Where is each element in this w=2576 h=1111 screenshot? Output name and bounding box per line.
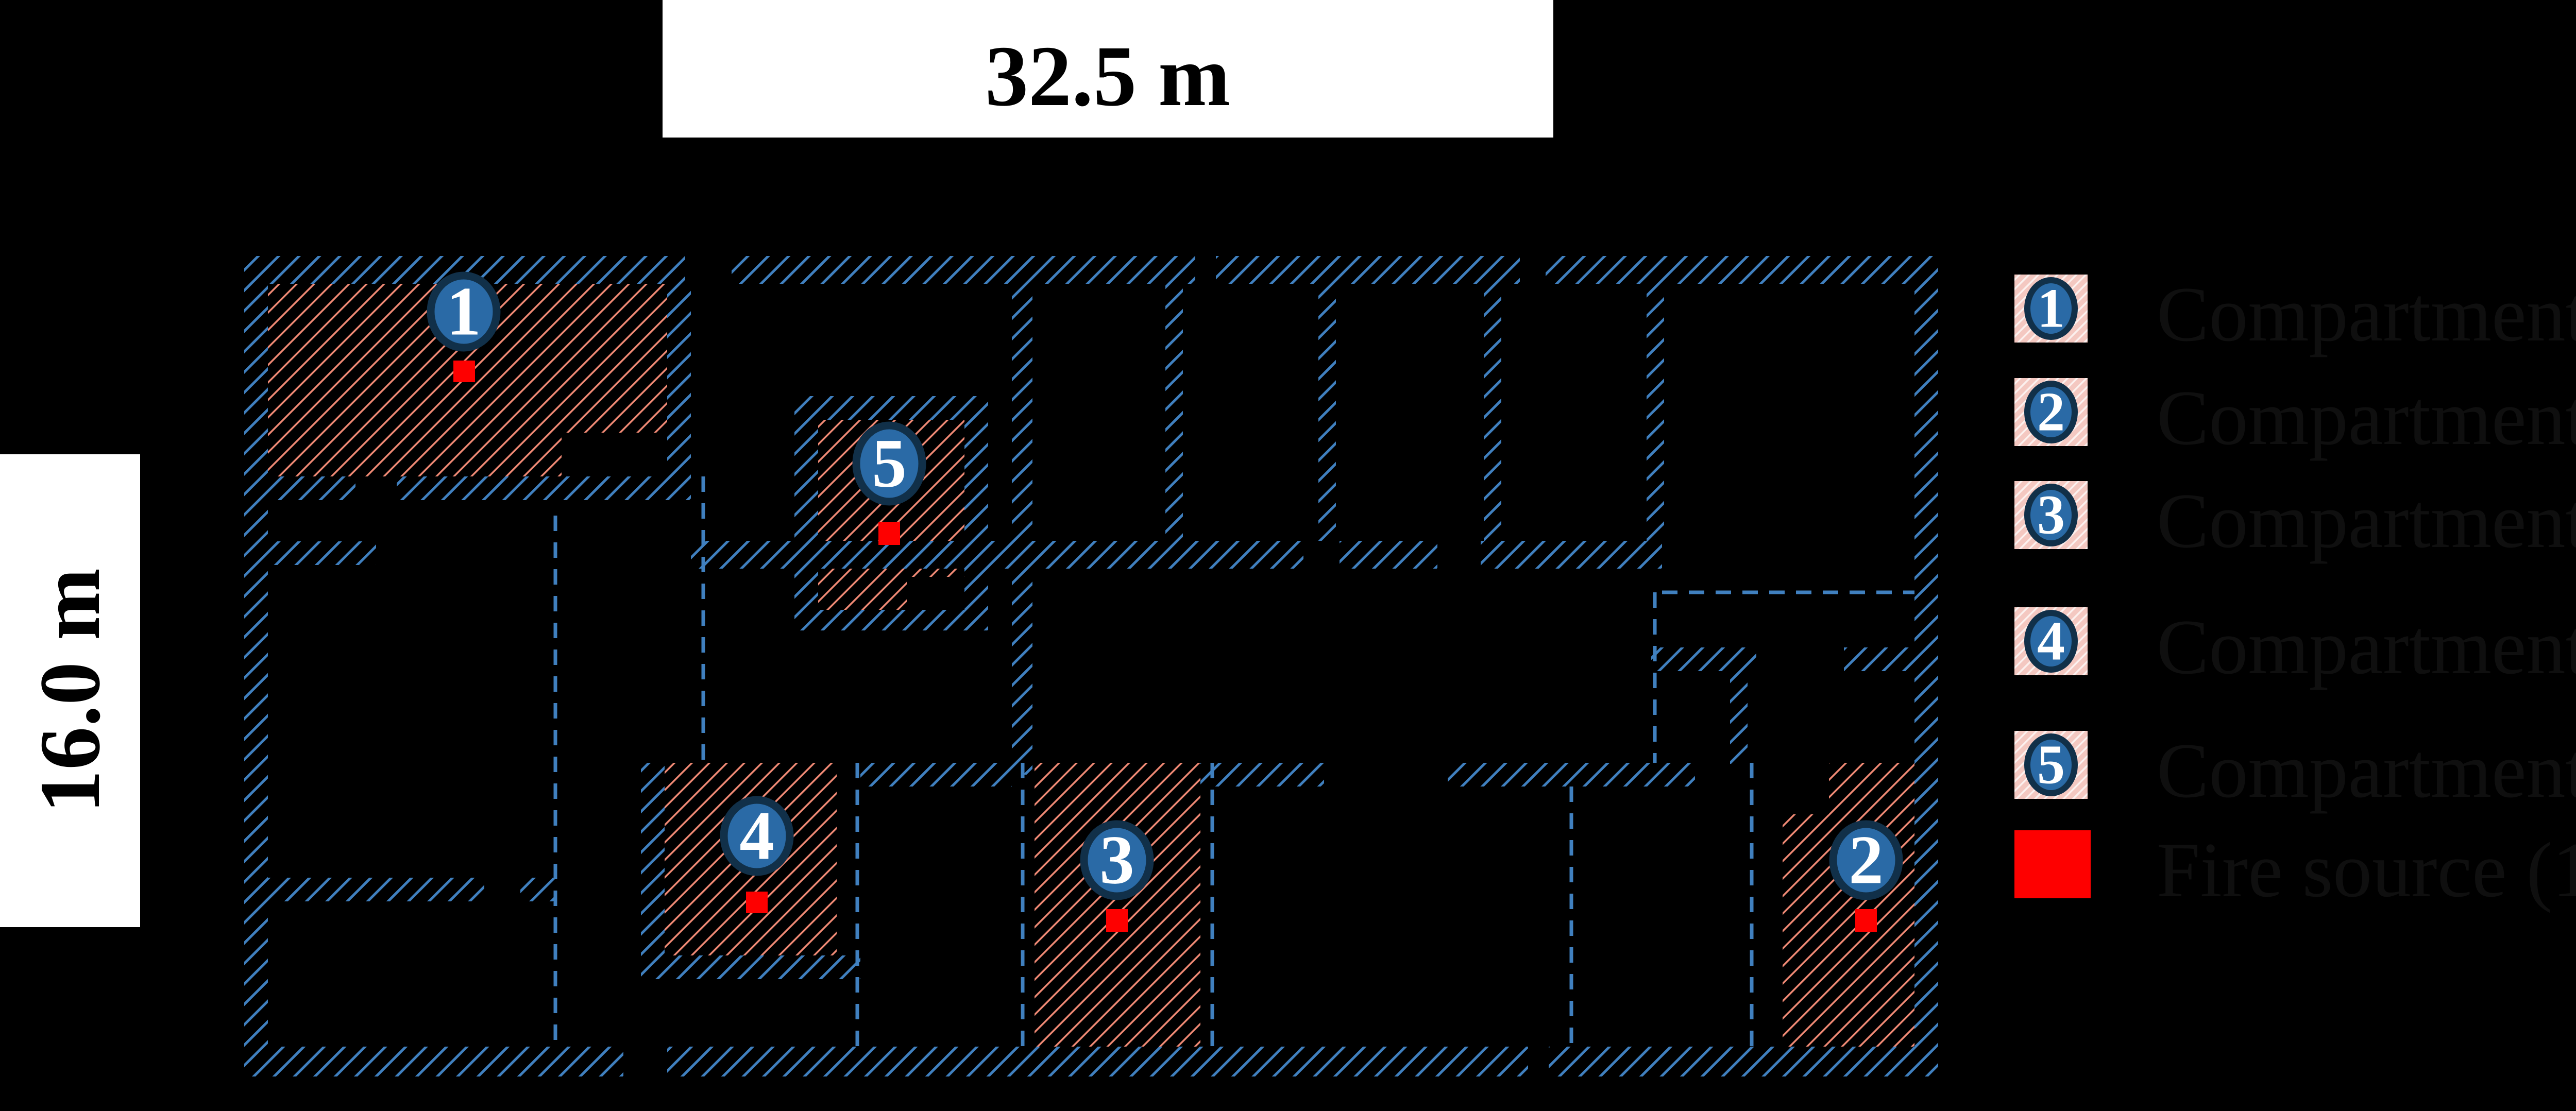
legend-badge-2-number: 2 [2037,382,2065,443]
marker-5-badge: 5 [856,425,922,502]
fire-source-4-marker [746,892,768,913]
compartment-3-region [1035,763,1200,1047]
legend-label-fire-source: Fire source (1 m²) [2157,827,2576,913]
top-scale-bar: 32.5 m [663,0,1553,138]
marker-2-number: 2 [1849,822,1884,899]
marker-1-number: 1 [446,274,481,350]
left-scale-label: 16.0 m [22,568,118,813]
marker-3-badge: 3 [1084,822,1150,899]
marker-3-number: 3 [1099,822,1134,899]
marker-5-number: 5 [872,425,907,502]
compartment-2-notch [1783,763,1829,814]
marker-1-badge: 1 [431,274,497,350]
floor-plan-svg: 1 2 3 4 5 32.5 m 16.0 m 1 C [0,0,2576,1111]
floor-plan-figure: 1 2 3 4 5 32.5 m 16.0 m 1 C [0,0,2576,1111]
fire-source-2-marker [1855,909,1877,932]
marker-4-badge: 4 [724,798,790,875]
legend-badge-3-number: 3 [2037,485,2065,546]
legend-swatch-fire-source [2014,830,2091,898]
legend-badge-5-number: 5 [2037,734,2065,796]
legend-label-4: Compartment 4 (11.02 m²) [2157,604,2576,690]
legend-label-1: Compartment 1 (30.11 m²) [2157,271,2576,357]
fire-source-3-marker [1106,909,1128,932]
legend-badge-1-number: 1 [2037,278,2065,339]
legend-label-5: Compartment 5 (8.03 m²) [2157,727,2576,814]
compartment-1-notch [562,433,667,476]
legend-label-2: Compartment 2 (19.69 m²) [2157,374,2576,461]
marker-4-number: 4 [739,798,774,875]
compartment-5-notch [907,577,964,610]
fire-source-5-marker [878,522,900,545]
left-scale-bar: 16.0 m [0,454,140,927]
legend-badge-4-number: 4 [2037,611,2065,672]
legend-label-3: Compartment 3 (19.39 m²) [2157,477,2576,564]
fire-source-1-marker [453,361,475,382]
top-scale-label: 32.5 m [985,28,1230,124]
marker-2-badge: 2 [1833,822,1899,899]
